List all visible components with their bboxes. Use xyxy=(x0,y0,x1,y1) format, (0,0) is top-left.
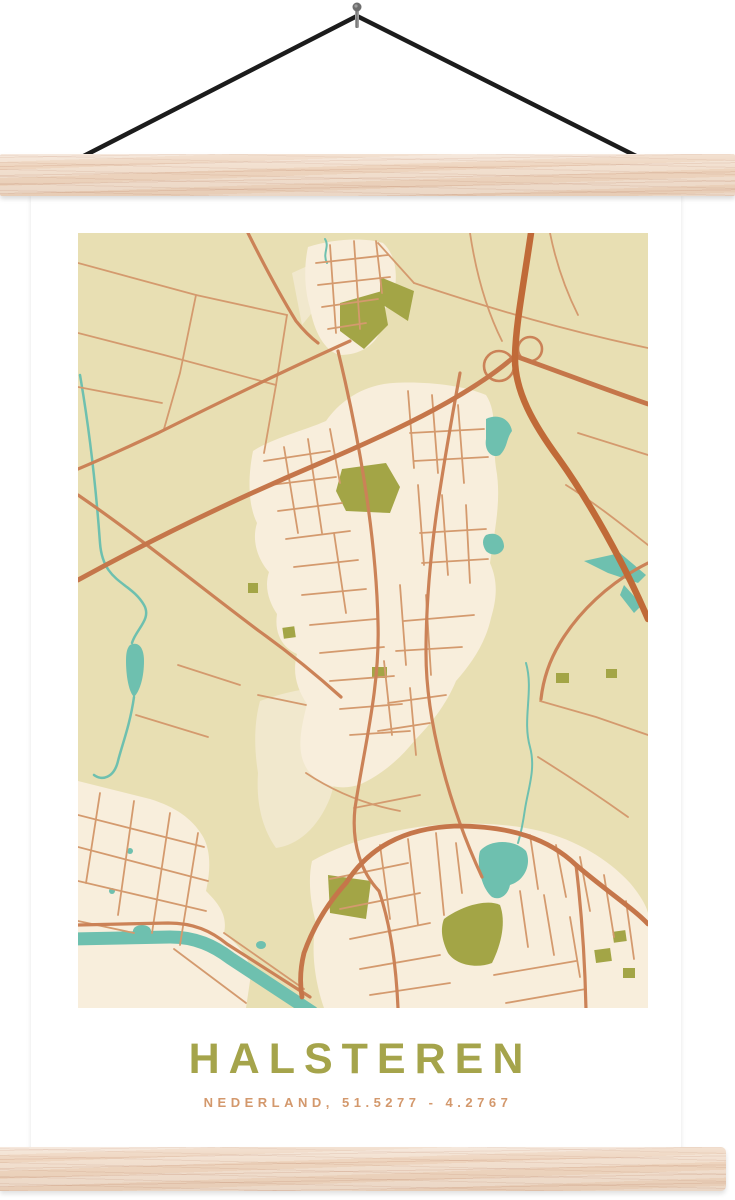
poster-subtitle: NEDERLAND, 51.5277 - 4.2767 xyxy=(35,1095,681,1110)
poster-caption: HALSTEREN NEDERLAND, 51.5277 - 4.2767 xyxy=(31,1038,681,1110)
cord-line xyxy=(72,16,648,162)
bottom-wooden-slat xyxy=(0,1147,726,1191)
vintage-city-map xyxy=(78,233,648,1008)
poster-sheet: HALSTEREN NEDERLAND, 51.5277 - 4.2767 xyxy=(31,196,681,1162)
poster-title: HALSTEREN xyxy=(40,1038,681,1081)
product-photo: HALSTEREN NEDERLAND, 51.5277 - 4.2767 xyxy=(0,0,735,1200)
top-wooden-slat xyxy=(0,154,735,196)
map-graphic xyxy=(78,233,648,1008)
